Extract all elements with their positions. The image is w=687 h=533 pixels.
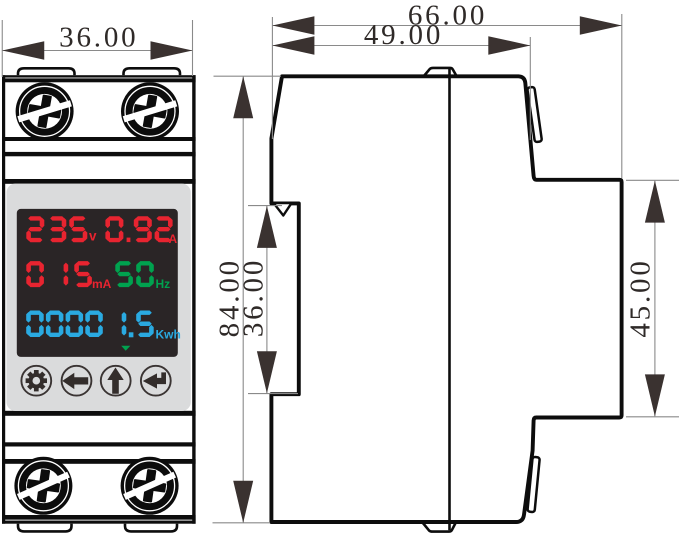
svg-text:49.00: 49.00 xyxy=(364,19,443,51)
svg-text:Hz: Hz xyxy=(156,277,171,291)
svg-text:36.00: 36.00 xyxy=(59,22,138,54)
svg-text:36.00: 36.00 xyxy=(238,258,270,337)
svg-text:45.00: 45.00 xyxy=(625,258,657,337)
svg-text:A: A xyxy=(169,232,178,246)
svg-text:v: v xyxy=(89,229,97,244)
svg-text:Kwh: Kwh xyxy=(156,328,181,342)
svg-text:mA: mA xyxy=(92,277,112,291)
